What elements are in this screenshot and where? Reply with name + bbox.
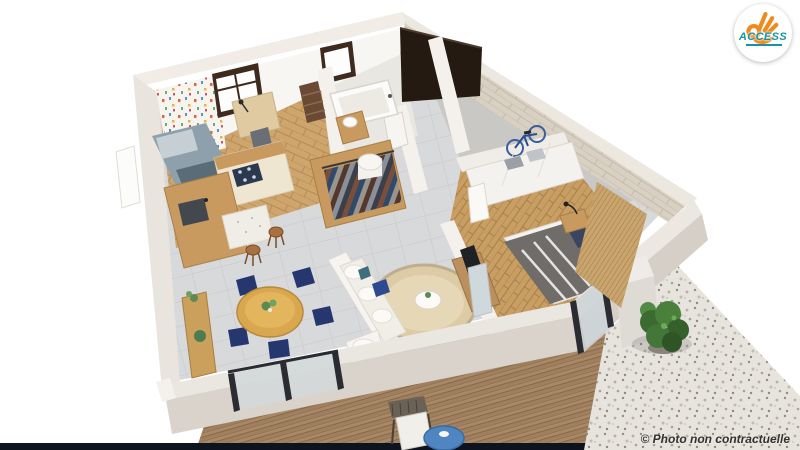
floorplan-3d-scene: [0, 0, 800, 450]
ok-hand-icon: [743, 9, 783, 49]
logo-underline: [746, 44, 782, 46]
blue-side-table: [424, 426, 464, 450]
logo-text: ACCESS: [734, 31, 792, 43]
laundry-basket: [358, 154, 382, 180]
floorplan-render: ACCESS © Photo non contractuelle: [0, 0, 800, 450]
access-logo: ACCESS: [734, 4, 792, 62]
dining-table: [237, 287, 303, 337]
coffee-table: [415, 291, 441, 309]
bottom-edge-strip: [0, 443, 632, 450]
copyright-text: © Photo non contractuelle: [640, 432, 790, 446]
